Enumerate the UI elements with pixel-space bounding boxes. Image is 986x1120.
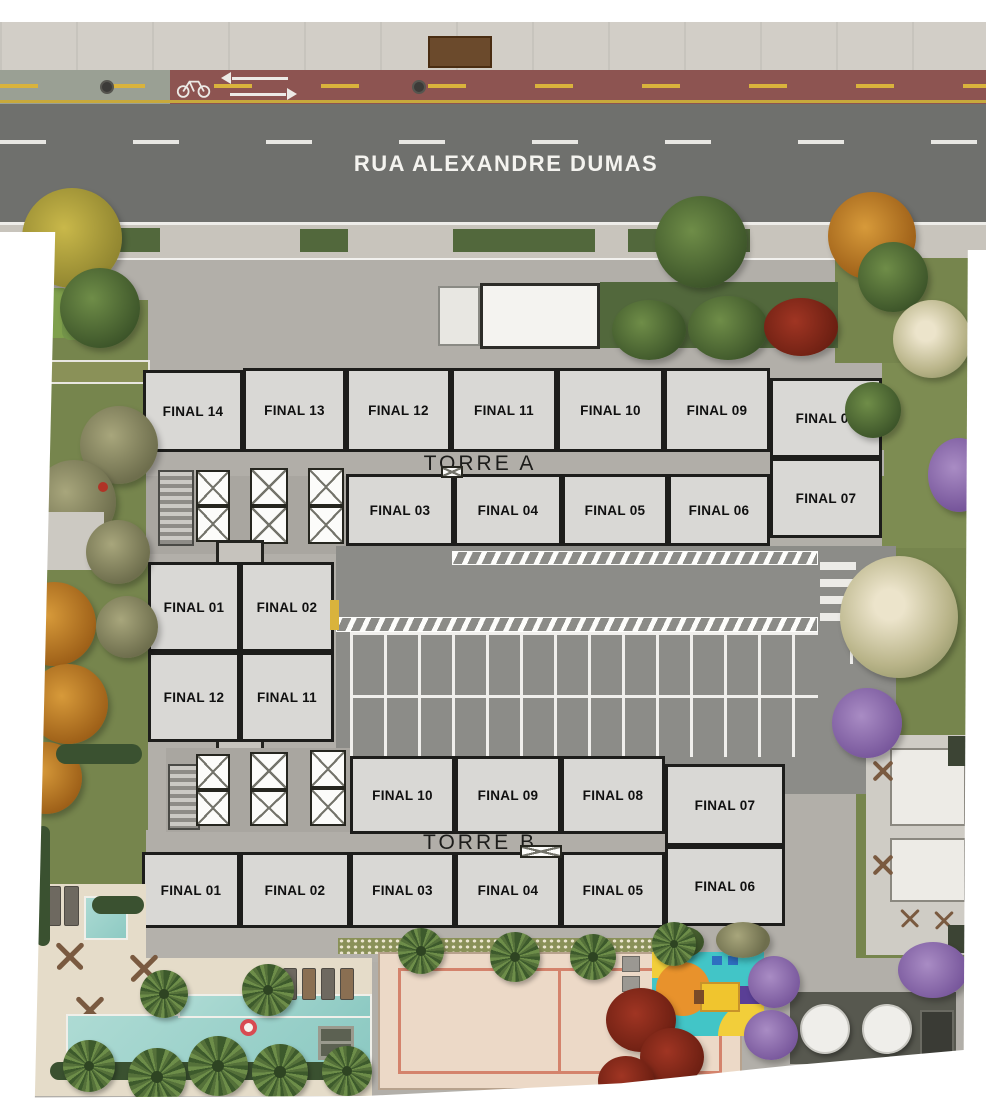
- torre-b-unit-final-03: FINAL 03: [350, 852, 455, 928]
- torre-a-unit-final-12: FINAL 12: [346, 368, 451, 452]
- water-tank: [862, 1004, 912, 1054]
- play-block: [712, 956, 722, 965]
- elevator-icon: [196, 470, 230, 506]
- sun-lounger: [321, 968, 335, 1000]
- torre-b-unit-final-04: FINAL 04: [455, 852, 561, 928]
- torre-a-unit-final-06: FINAL 06: [668, 474, 770, 546]
- torre-a-unit-final-10: FINAL 10: [557, 368, 664, 452]
- parking-row: [350, 695, 818, 757]
- elevator-icon: [196, 790, 230, 826]
- planter-box: [44, 360, 150, 384]
- entrance-walk: [438, 286, 480, 346]
- tree: [845, 382, 901, 438]
- torre-a-unit-final-05: FINAL 05: [562, 474, 668, 546]
- play-structure-step: [694, 990, 704, 1004]
- hatched-no-parking-strip: [452, 551, 818, 565]
- elevator-icon: [196, 506, 230, 542]
- torre-a-stairs: [158, 470, 194, 546]
- sun-lounger: [340, 968, 354, 1000]
- torre-b-unit-final-01: FINAL 01: [142, 852, 240, 928]
- elevator-icon: [250, 506, 288, 544]
- torre-b-unit-final-09: FINAL 09: [455, 756, 561, 834]
- elevator-icon: [308, 506, 344, 544]
- palm-tree: [398, 928, 444, 974]
- torre-a-unit-final-03: FINAL 03: [346, 474, 454, 546]
- palm-tree: [252, 1044, 308, 1100]
- speed-bump: [330, 600, 339, 630]
- lifebuoy-icon: [240, 1019, 257, 1036]
- sun-lounger: [64, 886, 79, 926]
- play-structure: [700, 982, 740, 1012]
- palm-tree: [188, 1036, 248, 1096]
- water-tank: [800, 1004, 850, 1054]
- tree: [898, 942, 968, 998]
- torre-a-unit-final-11: FINAL 11: [451, 368, 557, 452]
- sidewalk-top: [0, 22, 986, 70]
- tree: [716, 922, 770, 958]
- torre-b-unit-final-07: FINAL 07: [665, 764, 785, 846]
- manhole: [412, 80, 426, 94]
- torre-a-label: TORRE A: [400, 452, 560, 474]
- utility-box: [428, 36, 492, 68]
- elevator-icon: [250, 790, 288, 826]
- tree: [96, 596, 158, 658]
- torre-a-unit-final-01: FINAL 01: [148, 562, 240, 652]
- torre-b-unit-final-06: FINAL 06: [665, 846, 785, 926]
- torre-b-unit-final-12: FINAL 12: [148, 652, 240, 742]
- torre-a-unit-final-07: FINAL 07: [770, 458, 882, 538]
- tree: [86, 520, 150, 584]
- hedge-strip: [56, 744, 142, 764]
- equipment-box: [622, 956, 640, 972]
- elevator-icon: [310, 788, 346, 826]
- torre-b-unit-final-11: FINAL 11: [240, 652, 334, 742]
- bike-lane-dashes: [0, 84, 986, 88]
- hatched-no-parking-strip: [336, 617, 818, 632]
- torre-b-unit-final-10: FINAL 10: [350, 756, 455, 834]
- road-lane-dashes: [0, 140, 986, 144]
- elevator-icon: [310, 750, 346, 788]
- court-center-line: [558, 968, 561, 1074]
- tree: [893, 300, 971, 378]
- tree: [60, 268, 140, 348]
- tree: [832, 688, 902, 758]
- planting-strip: [300, 229, 348, 252]
- palm-tree: [242, 964, 294, 1016]
- torre-a-unit-final-13: FINAL 13: [243, 368, 346, 452]
- torre-a-unit-final-14: FINAL 14: [143, 370, 243, 452]
- palm-tree: [490, 932, 540, 982]
- planter-dark: [948, 736, 966, 766]
- vent-shaft: [441, 466, 463, 478]
- tree: [688, 296, 768, 360]
- planting-strip: [453, 229, 595, 252]
- elevator-icon: [308, 468, 344, 506]
- parking-row: [350, 632, 818, 695]
- tree: [764, 298, 838, 356]
- torre-a-unit-final-02: FINAL 02: [240, 562, 334, 652]
- lane-arrow-left-icon: [232, 77, 288, 80]
- torre-b-unit-final-08: FINAL 08: [561, 756, 665, 834]
- tree: [655, 196, 747, 288]
- lane-arrow-right-icon: [230, 93, 286, 96]
- palm-tree: [652, 922, 696, 966]
- sun-lounger: [302, 968, 316, 1000]
- torre-b-unit-final-05: FINAL 05: [561, 852, 665, 928]
- vent-shaft: [520, 845, 562, 858]
- street-name: RUA ALEXANDRE DUMAS: [296, 151, 716, 179]
- flower-accent: [98, 482, 108, 492]
- palm-tree: [322, 1046, 372, 1096]
- entrance-building: [480, 283, 600, 349]
- elevator-icon: [250, 468, 288, 506]
- palm-tree: [570, 934, 616, 980]
- site-plan: RUA ALEXANDRE DUMAS FINAL 14 FINAL 13 FI…: [0, 0, 986, 1120]
- pool-step-mat: [321, 1029, 351, 1041]
- tree: [612, 300, 686, 360]
- pergola: [890, 838, 966, 902]
- tree: [840, 556, 958, 678]
- elevator-icon: [196, 754, 230, 790]
- torre-a-unit-final-09: FINAL 09: [664, 368, 770, 452]
- manhole: [100, 80, 114, 94]
- bike-lane-edge-line: [0, 100, 986, 103]
- bush: [744, 1010, 798, 1060]
- hedge-strip: [92, 896, 144, 914]
- bush: [748, 956, 800, 1008]
- palm-tree: [63, 1040, 115, 1092]
- elevator-icon: [250, 752, 288, 790]
- bike-icon: [176, 73, 212, 101]
- palm-tree: [140, 970, 188, 1018]
- torre-b-unit-final-02: FINAL 02: [240, 852, 350, 928]
- torre-a-unit-final-04: FINAL 04: [454, 474, 562, 546]
